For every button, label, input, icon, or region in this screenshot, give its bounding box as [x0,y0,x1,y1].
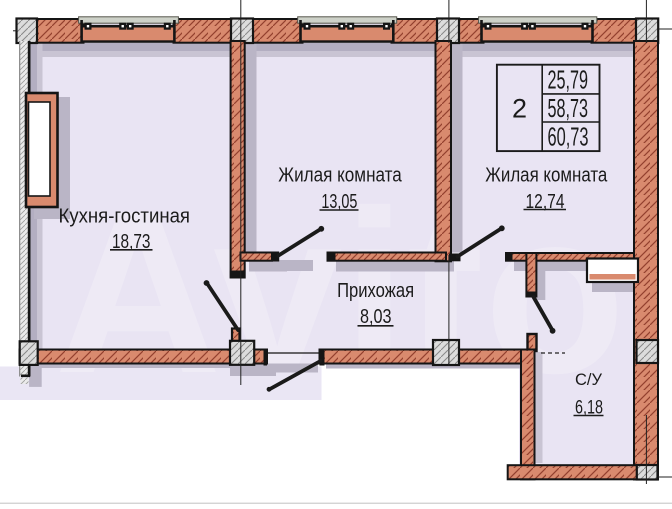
svg-text:8,03: 8,03 [360,305,392,328]
svg-text:2: 2 [512,94,527,124]
svg-text:60,73: 60,73 [548,124,589,152]
svg-text:С/У: С/У [575,370,602,389]
svg-text:Кухня-гостиная: Кухня-гостиная [59,205,191,228]
svg-text:Прихожая: Прихожая [337,279,414,302]
svg-text:Жилая комната: Жилая комната [278,163,402,186]
svg-text:Жилая комната: Жилая комната [485,163,607,186]
svg-text:58,73: 58,73 [548,95,589,123]
svg-text:25,79: 25,79 [548,67,589,95]
